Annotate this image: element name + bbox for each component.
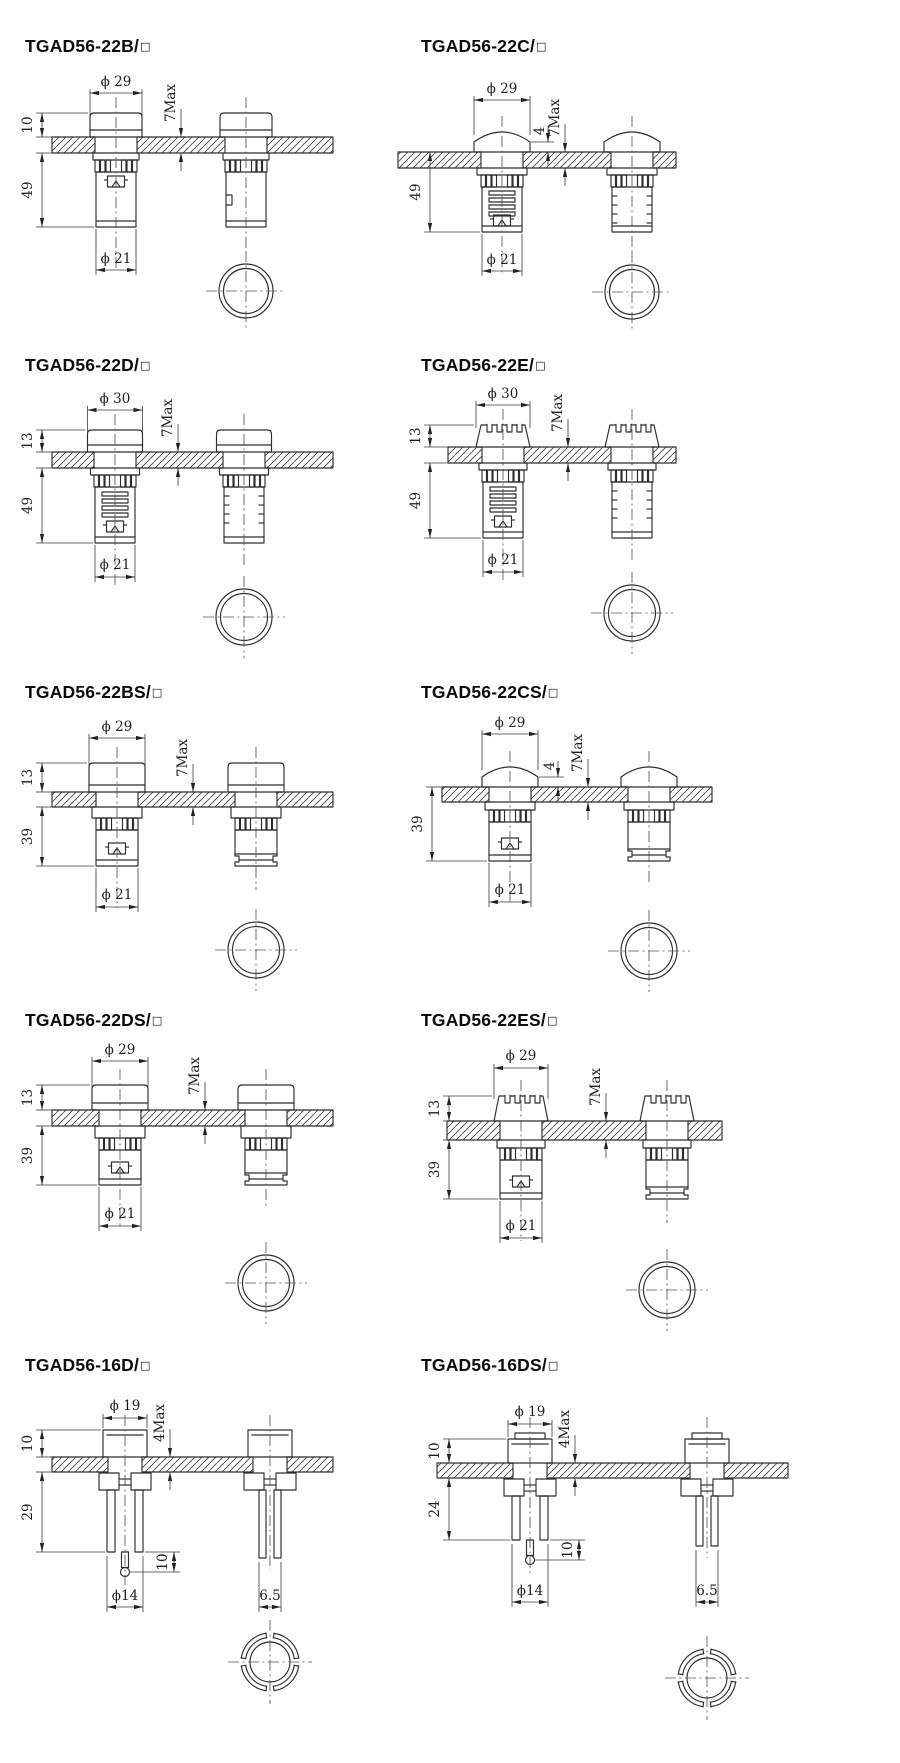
panel-cross-section — [137, 137, 225, 153]
dim-label-bottom-diameter: ϕ14 — [517, 1583, 543, 1599]
dim-label-top-diameter: ϕ 29 — [495, 715, 526, 731]
panel-cross-section — [531, 787, 628, 802]
catalog-dimension-page: ϕ 2910497Maxϕ 21ϕ 29497Max4ϕ 21ϕ 3013497… — [0, 0, 900, 1763]
side-view — [238, 1069, 294, 1209]
mounting-hole-view — [228, 1620, 312, 1704]
dim-label-top-diameter: ϕ 29 — [105, 1042, 136, 1058]
panel-cross-section — [267, 137, 333, 153]
panel-title-16d: TGAD56-16D/□ — [25, 1355, 151, 1376]
dim-label-body-length: 39 — [410, 815, 426, 832]
dim-label-cap-height: 13 — [20, 769, 36, 786]
dim-label-cap-height: 13 — [20, 432, 36, 449]
mounting-hole-view — [203, 576, 285, 658]
panel-tgad56-22es-: ϕ 2913397Maxϕ 21 — [427, 1048, 722, 1331]
dim-label-top-diameter: ϕ 19 — [515, 1404, 546, 1420]
panel-title-22d: TGAD56-22D/□ — [25, 355, 151, 376]
mounting-panel — [52, 792, 333, 807]
side-view — [244, 1415, 296, 1570]
panel-tgad56-22cs-: ϕ 29397Max4ϕ 21 — [410, 715, 712, 992]
dimensions: ϕ 2913397Maxϕ 21 — [427, 1048, 608, 1243]
panel-cross-section — [52, 792, 96, 807]
mounting-panel — [447, 1121, 722, 1140]
dim-label-body-length: 49 — [408, 492, 424, 509]
dim-label-top-diameter: ϕ 29 — [506, 1048, 537, 1064]
panel-cross-section — [442, 787, 489, 802]
panel-cross-section — [724, 1463, 788, 1478]
side-view — [228, 747, 284, 890]
panel-title-text: TGAD56-22DS/ — [25, 1010, 151, 1030]
dim-label-cap-height: 13 — [427, 1100, 443, 1117]
panel-cross-section — [52, 1457, 108, 1472]
color-placeholder-square: □ — [536, 40, 547, 53]
mounting-panel — [52, 1457, 333, 1472]
side-view — [640, 1080, 694, 1223]
panel-title-16ds: TGAD56-16DS/□ — [421, 1355, 559, 1376]
dim-label-cap-height: 10 — [20, 1435, 36, 1452]
color-placeholder-square: □ — [535, 359, 546, 372]
mounting-panel — [52, 452, 333, 468]
dim-label-pin-length: 10 — [560, 1541, 576, 1558]
dim-label-top-diameter: ϕ 30 — [488, 386, 519, 402]
dim-label-cap-height: 10 — [427, 1442, 443, 1459]
mounting-hole-view — [215, 909, 297, 991]
color-placeholder-square: □ — [140, 40, 151, 53]
color-placeholder-square: □ — [548, 686, 559, 699]
panel-cross-section — [524, 447, 611, 463]
mounting-hole-view — [626, 1249, 708, 1331]
panel-cross-section — [138, 792, 235, 807]
dim-label-panel-thickness: 7Max — [160, 399, 176, 437]
dim-label-bottom-diameter: ϕ 21 — [105, 1206, 136, 1222]
side-view — [604, 116, 660, 256]
mounting-panel — [448, 447, 676, 463]
panel-title-22c: TGAD56-22C/□ — [421, 36, 547, 57]
color-placeholder-square: □ — [140, 1359, 151, 1372]
dim-label-body-length: 49 — [20, 181, 36, 198]
panel-cross-section — [287, 1110, 333, 1126]
dim-label-bottom-diameter: ϕ 21 — [102, 887, 133, 903]
dimensions: ϕ 29497Max4ϕ 21 — [398, 81, 567, 276]
dim-label-panel-thickness: 7Max — [175, 739, 191, 777]
panel-tgad56-22c-: ϕ 29497Max4ϕ 21 — [398, 81, 676, 332]
dim-label-bottom-diameter: ϕ14 — [112, 1588, 138, 1604]
side-view — [220, 97, 272, 251]
mounting-hole-view — [591, 572, 673, 654]
side-view — [605, 409, 659, 562]
panel-title-text: TGAD56-16DS/ — [421, 1355, 547, 1375]
dim-label-panel-thickness: 7Max — [163, 84, 179, 122]
technical-drawing-canvas: ϕ 2910497Maxϕ 21ϕ 29497Max4ϕ 21ϕ 3013497… — [0, 0, 900, 1763]
panel-cross-section — [52, 452, 94, 468]
dim-label-terminal-width: 6.5 — [259, 1588, 280, 1604]
section-view — [90, 97, 142, 269]
color-placeholder-square: □ — [548, 1359, 559, 1372]
panel-cross-section — [141, 1110, 245, 1126]
panel-tgad56-22ds-: ϕ 2913397Maxϕ 21 — [20, 1042, 333, 1324]
panel-title-22es: TGAD56-22ES/□ — [421, 1010, 558, 1031]
panel-cross-section — [448, 447, 482, 463]
dim-label-body-length: 39 — [20, 828, 36, 845]
panel-cross-section — [653, 152, 676, 168]
panel-title-text: TGAD56-22C/ — [421, 36, 535, 56]
dim-label-body-length: 24 — [427, 1500, 443, 1517]
dimensions: ϕ 2913397Maxϕ 21 — [20, 719, 195, 912]
dimensions: ϕ 2910497Maxϕ 21 — [20, 74, 183, 275]
dim-label-panel-thickness: 4Max — [152, 1404, 168, 1442]
dim-label-top-diameter: ϕ 19 — [110, 1398, 141, 1414]
panel-title-text: TGAD56-22E/ — [421, 355, 534, 375]
panel-cross-section — [277, 792, 333, 807]
panel-tgad56-22d-: ϕ 3013497Maxϕ 21 — [20, 391, 333, 658]
panel-title-text: TGAD56-22ES/ — [421, 1010, 546, 1030]
dim-label-top-diameter: ϕ 29 — [101, 74, 132, 90]
dim-label-bottom-diameter: ϕ 21 — [488, 552, 519, 568]
section-view — [92, 1069, 148, 1227]
dim-label-top-diameter: ϕ 29 — [487, 81, 518, 97]
mounting-hole-view — [225, 1242, 307, 1324]
panel-title-22e: TGAD56-22E/□ — [421, 355, 546, 376]
mounting-hole-view — [206, 251, 286, 331]
dimensions: ϕ 3013497Maxϕ 21 — [408, 386, 570, 577]
mounting-hole-view — [665, 1636, 749, 1720]
panel-cross-section — [142, 1457, 253, 1472]
mounting-hole-view — [592, 252, 672, 332]
panel-title-text: TGAD56-22B/ — [25, 36, 139, 56]
dim-label-top-diameter: ϕ 29 — [102, 719, 133, 735]
mounting-panel — [398, 152, 676, 168]
dimensions: ϕ 1910244Maxϕ14106.5 — [427, 1404, 718, 1607]
dim-label-cap-height: 13 — [408, 427, 424, 444]
panel-title-22ds: TGAD56-22DS/□ — [25, 1010, 163, 1031]
panel-cross-section — [52, 137, 95, 153]
color-placeholder-square: □ — [152, 1014, 163, 1027]
dim-label-bottom-diameter: ϕ 21 — [506, 1218, 537, 1234]
panel-cross-section — [265, 452, 333, 468]
dim-label-bezel-height: 4 — [542, 762, 558, 771]
dim-label-panel-thickness: 4Max — [557, 1410, 573, 1448]
panel-title-22bs: TGAD56-22BS/□ — [25, 682, 163, 703]
dim-label-panel-thickness: 7Max — [588, 1068, 604, 1106]
dimensions: ϕ 2913397Maxϕ 21 — [20, 1042, 207, 1231]
dim-label-body-length: 39 — [20, 1147, 36, 1164]
section-view — [89, 747, 145, 908]
dim-label-bezel-height: 4 — [532, 127, 548, 136]
panel-cross-section — [670, 787, 712, 802]
panel-tgad56-22bs-: ϕ 2913397Maxϕ 21 — [20, 719, 333, 991]
color-placeholder-square: □ — [547, 1014, 558, 1027]
dim-label-cap-height: 13 — [20, 1089, 36, 1106]
panel-cross-section — [52, 1110, 99, 1126]
panel-cross-section — [523, 152, 611, 168]
dim-label-top-diameter: ϕ 30 — [100, 391, 131, 407]
panel-cross-section — [653, 447, 676, 463]
dim-label-bottom-diameter: ϕ 21 — [100, 557, 131, 573]
panel-title-text: TGAD56-16D/ — [25, 1355, 139, 1375]
dim-label-terminal-width: 6.5 — [696, 1583, 717, 1599]
mounting-hole-view — [608, 910, 690, 992]
panel-title-text: TGAD56-22CS/ — [421, 682, 547, 702]
panel-cross-section — [287, 1457, 333, 1472]
panel-title-22cs: TGAD56-22CS/□ — [421, 682, 559, 703]
panel-cross-section — [547, 1463, 690, 1478]
panel-cross-section — [447, 1121, 500, 1140]
panel-tgad56-22e-: ϕ 3013497Maxϕ 21 — [408, 386, 676, 654]
dim-label-body-length: 49 — [408, 183, 424, 200]
color-placeholder-square: □ — [140, 359, 151, 372]
panel-title-text: TGAD56-22BS/ — [25, 682, 151, 702]
dim-label-body-length: 39 — [427, 1161, 443, 1178]
mounting-panel — [52, 137, 333, 153]
panel-cross-section — [136, 452, 223, 468]
panel-tgad56-16ds-: ϕ 1910244Maxϕ14106.5 — [427, 1404, 788, 1720]
panel-tgad56-16d-: ϕ 1910294Maxϕ14106.5 — [20, 1398, 333, 1704]
mounting-panel — [52, 1110, 333, 1126]
dim-label-panel-thickness: 7Max — [187, 1057, 203, 1095]
dim-label-bottom-diameter: ϕ 21 — [487, 252, 518, 268]
panel-cross-section — [398, 152, 481, 168]
dim-label-bottom-diameter: ϕ 21 — [101, 251, 132, 267]
dim-label-panel-thickness: 7Max — [547, 99, 563, 137]
side-view — [621, 751, 677, 885]
section-view — [482, 751, 538, 903]
panel-cross-section — [437, 1463, 513, 1478]
panel-cross-section — [542, 1121, 646, 1140]
mounting-panel — [442, 787, 712, 802]
panel-title-text: TGAD56-22D/ — [25, 355, 139, 375]
side-view — [681, 1417, 733, 1558]
color-placeholder-square: □ — [152, 686, 163, 699]
dim-label-panel-thickness: 7Max — [570, 734, 586, 772]
dim-label-panel-thickness: 7Max — [550, 394, 566, 432]
dim-label-bottom-diameter: ϕ 21 — [495, 882, 526, 898]
mounting-panel — [437, 1463, 788, 1478]
panel-title-22b: TGAD56-22B/□ — [25, 36, 151, 57]
panel-cross-section — [688, 1121, 722, 1140]
dim-label-pin-length: 10 — [155, 1553, 171, 1570]
dim-label-body-length: 29 — [20, 1503, 36, 1520]
dim-label-cap-height: 10 — [20, 116, 36, 133]
side-view — [217, 414, 272, 567]
panel-tgad56-22b-: ϕ 2910497Maxϕ 21 — [20, 74, 333, 331]
dim-label-body-length: 49 — [20, 497, 36, 514]
dimensions: ϕ 1910294Maxϕ14106.5 — [20, 1398, 281, 1612]
